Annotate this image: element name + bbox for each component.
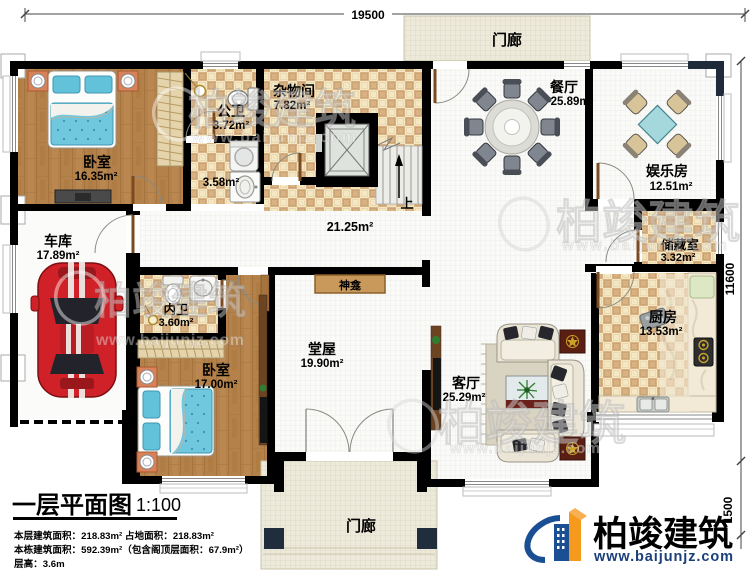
svg-text:13.53m²: 13.53m² (640, 326, 683, 338)
svg-text:12.51m²: 12.51m² (650, 181, 693, 193)
svg-text:1:100: 1:100 (136, 495, 181, 515)
svg-text:柏竣建筑: 柏竣建筑 (94, 281, 246, 323)
svg-text:本层建筑面积：218.83m² 占地面积：218.83m²: 本层建筑面积：218.83m² 占地面积：218.83m² (13, 530, 214, 542)
svg-text:层高：3.6m: 层高：3.6m (14, 558, 65, 570)
svg-text:一层平面图: 一层平面图 (12, 492, 132, 519)
svg-text:本栋建筑面积：592.39m²（包含阁顶层面积：67.9m²: 本栋建筑面积：592.39m²（包含阁顶层面积：67.9m²） (13, 544, 249, 556)
svg-text:客厅: 客厅 (451, 375, 480, 391)
svg-text:17.00m²: 17.00m² (195, 379, 238, 391)
svg-text:25.89m²: 25.89m² (551, 96, 594, 108)
svg-text:神龛: 神龛 (339, 278, 362, 292)
svg-text:上: 上 (400, 196, 413, 211)
svg-text:卧室: 卧室 (202, 362, 230, 378)
svg-text:11600: 11600 (723, 262, 737, 295)
svg-text:19.90m²: 19.90m² (301, 358, 344, 370)
svg-text:柏竣建筑: 柏竣建筑 (188, 86, 356, 133)
svg-text:门廊: 门廊 (492, 31, 522, 49)
svg-text:门廊: 门廊 (346, 517, 376, 535)
svg-text:www.baijunjz.com: www.baijunjz.com (449, 440, 600, 457)
svg-text:厨房: 厨房 (649, 309, 677, 325)
svg-text:www.baijunjz.com: www.baijunjz.com (95, 332, 244, 349)
svg-text:www.baijunjz.com: www.baijunjz.com (593, 549, 733, 565)
svg-text:柏竣建筑: 柏竣建筑 (593, 514, 733, 554)
svg-text:堂屋: 堂屋 (308, 341, 336, 357)
svg-text:19500: 19500 (351, 8, 385, 22)
svg-text:车库: 车库 (44, 233, 72, 249)
svg-text:餐厅: 餐厅 (549, 79, 578, 95)
svg-text:21.25m²: 21.25m² (327, 220, 374, 234)
svg-text:16.35m²: 16.35m² (75, 171, 118, 183)
svg-text:娱乐房: 娱乐房 (646, 163, 688, 179)
svg-text:卧室: 卧室 (83, 154, 111, 170)
svg-text:17.89m²: 17.89m² (37, 250, 80, 262)
svg-text:3.58m²: 3.58m² (203, 177, 240, 189)
